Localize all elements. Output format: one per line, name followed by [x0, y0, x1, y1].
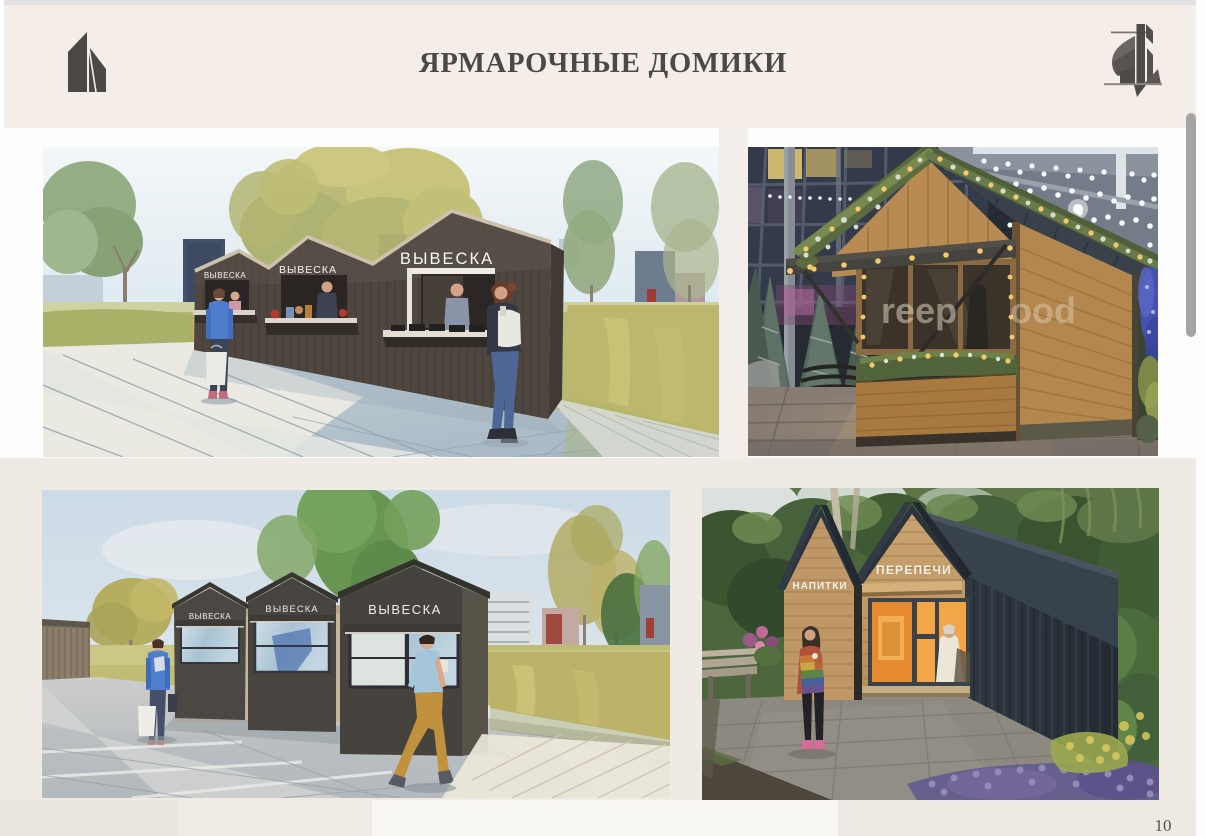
svg-text:ood: ood	[1010, 290, 1076, 331]
svg-text:ВЫВЕСКА: ВЫВЕСКА	[265, 604, 318, 615]
svg-text:ВЫВЕСКА: ВЫВЕСКА	[400, 250, 494, 268]
svg-text:НАПИТКИ: НАПИТКИ	[792, 581, 847, 592]
svg-text:ВЫВЕСКА: ВЫВЕСКА	[204, 271, 247, 280]
svg-text:reep: reep	[881, 290, 957, 331]
svg-text:ВЫВЕСКА: ВЫВЕСКА	[368, 602, 442, 617]
svg-text:ПЕРЕПЕЧИ: ПЕРЕПЕЧИ	[876, 563, 952, 577]
svg-text:ВЫВЕСКА: ВЫВЕСКА	[279, 264, 337, 276]
svg-text:ВЫВЕСКА: ВЫВЕСКА	[189, 612, 232, 621]
